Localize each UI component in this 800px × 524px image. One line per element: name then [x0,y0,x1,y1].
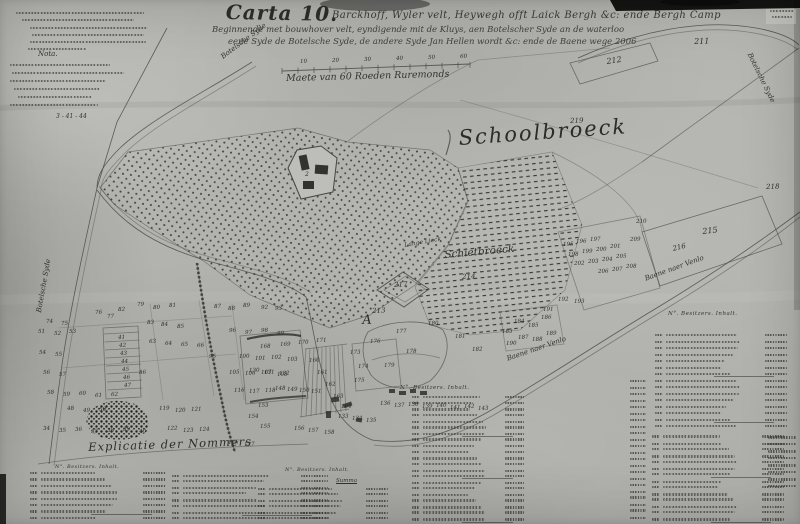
ledger-text [666,347,738,349]
parcel-number: 65 [181,343,188,349]
ledger-text [41,491,117,493]
parcel-number: 148 [275,387,286,393]
handwritten-note-line [772,16,792,18]
map-labels-layer: Carta 10. Barckhoff, Wyler velt, Heywegh… [0,0,800,524]
ledger-text [630,491,646,493]
parcel-number: 38 [107,429,114,435]
parcel-number: 50 [428,56,435,62]
ledger-text [762,493,784,495]
parcel-number: 118 [265,389,276,395]
ledger-text [630,387,646,389]
ledger-text [666,367,722,369]
ledger-text [423,499,476,501]
ledger-text [269,500,342,502]
ledger-text [666,386,740,388]
ledger-text [765,380,787,382]
ledger-text [630,484,646,486]
ledger-text [630,426,646,428]
ledger-text [183,512,270,514]
parcel-number: 40 [396,57,403,63]
parcel-number: 198 [568,253,579,259]
ledger-sum-line [242,515,312,516]
ledger-text [505,426,524,428]
parcel-number: 124 [199,428,210,434]
parcel-number: 121 [191,408,202,414]
ledger-text [301,480,328,482]
ledger-text [655,380,663,382]
ledger-text [423,506,482,508]
ledger-text [505,433,524,435]
ledger-text [269,488,332,490]
ledger-text [655,360,663,362]
ledger-text [30,478,38,480]
ledger-text [412,445,420,447]
ledger-text [423,408,470,410]
table-header-right: N°. Besitzers. Inhalt. [668,312,738,318]
ledger-text [630,452,646,454]
parcel-number: 135 [366,419,377,425]
ledger-text [269,512,336,514]
ledger-text [505,402,524,404]
parcel-number: 208 [626,265,637,271]
ledger-text [765,393,787,395]
parcel-number: 196 [576,240,587,246]
ledger-text [412,438,420,440]
parcel-number: 103 [287,358,298,364]
ledger-text [423,433,485,435]
parcel-number: 101 [255,357,266,363]
parcel-number: 183 [502,330,513,336]
parcel-number: 35 [59,429,66,435]
ledger-text [172,517,180,519]
parcel-number: 40 [139,430,146,436]
parcel-number: 81 [169,304,176,310]
parcel-number: 10 [300,60,307,66]
ledger-text [258,493,266,495]
ledger-text [666,412,721,414]
ledger-text [143,504,166,506]
parcel-number: 195 [563,243,574,249]
parcel-label: 215 [702,226,718,236]
ledger-text [765,425,787,427]
ledger-text [258,517,266,519]
parcel-number: 48 [67,407,74,413]
ledger-text [412,421,420,423]
ledger-text [505,445,524,447]
ledger-text [30,510,38,512]
ledger-text [423,445,474,447]
parcel-number: 158 [324,431,335,437]
ledger-text [412,475,420,477]
ledger-text [172,512,180,514]
ledger-text [412,470,420,472]
ledger-text [366,488,388,490]
parcel-number: 127 [244,443,255,449]
ledger-text [30,491,38,493]
ledger-text [666,406,726,408]
table-header-left: N°. Besitzers. Inhalt. [55,465,119,470]
ledger-text [41,517,96,519]
ledger-text [505,506,524,508]
parcel-label: 214 [462,274,476,281]
ledger-text [258,505,266,507]
ledger-text [762,518,784,520]
ledger-text [505,511,524,513]
ledger-text [505,457,524,459]
ledger-text [630,380,646,382]
ledger-text [143,517,166,519]
ledger-text [630,419,646,421]
parcel-number: 203 [588,260,599,266]
ledger-text [41,472,95,474]
ledger-text [765,341,787,343]
ledger-text [663,498,734,500]
ledger-text [655,406,663,408]
parcel-number: 87 [214,305,221,311]
handwritten-note-line [10,64,110,66]
parcel-number: 80 [153,306,160,312]
ledger-text [652,481,660,483]
ledger-text [663,473,730,475]
parcel-number: 51 [38,330,45,336]
ledger-text [630,393,646,395]
parcel-number: 122 [167,427,178,433]
ledger-text [655,334,663,336]
parcel-number: 119 [159,407,170,413]
ledger-text [630,445,646,447]
parcel-number: 197 [590,238,601,244]
ledger-text [663,511,735,513]
parcel-number: 131 [264,371,275,377]
ledger-text [652,498,660,500]
ledger-text [505,438,524,440]
parcel-number: 57 [59,373,66,379]
parcel-number: 53 [69,330,76,336]
ledger-text [655,373,663,375]
parcel-number: 46 [123,376,130,382]
ledger-text [666,380,737,382]
parcel-number: 160 [309,359,320,365]
parcel-number: 154 [248,415,259,421]
parcel-number: 55 [55,353,62,359]
parcel-number: 96 [229,329,236,335]
ledger-text [143,510,166,512]
ledger-text [258,488,266,490]
ledger-text [663,455,735,457]
ledger-text [768,485,796,487]
ledger-text [41,498,117,500]
parcel-number: 200 [596,248,607,254]
parcel-number: 155 [260,425,271,431]
parcel-number: 100 [239,355,250,361]
parcel-number: 49 [83,409,90,415]
ledger-text [652,493,660,495]
parcel-number: 36 [75,428,82,434]
ledger-text [765,367,787,369]
ledger-text [655,412,663,414]
parcel-number: 88 [228,307,235,313]
parcel-number: 150 [299,389,310,395]
parcel-number: 179 [384,364,395,370]
map-title-line2: Beginnende met bouwhover velt, eyndigend… [212,26,624,35]
ledger-text [172,505,180,507]
parcel-number: 76 [95,311,102,317]
ledger-text [652,486,660,488]
nota-label: Nota. [38,51,58,58]
region-schietbroeck: Schietbroeck [444,244,515,261]
ledger-text [768,471,796,473]
ledger-sum-line [91,514,152,515]
ledger-text [765,354,787,356]
ledger-text [630,458,646,460]
parcel-number: 84 [161,323,168,329]
ledger-text [423,426,486,428]
ledger-text [505,470,524,472]
ledger-text [765,406,787,408]
ledger-text [143,472,166,474]
ledger-text [505,499,524,501]
ledger-text [412,482,420,484]
handwritten-note-line [10,104,98,106]
ledger-text [505,463,524,465]
parcel-number: 177 [396,330,407,336]
parcel-number: 193 [574,300,585,306]
ledger-text [412,451,420,453]
ledger-text [412,487,420,489]
parcel-number: 85 [177,325,184,331]
road-botelsche-left: Botelsche Syde [36,258,52,313]
note-fragment: 3 - 41 - 44 [56,114,87,120]
ledger-text [41,478,105,480]
ledger-text [183,480,264,482]
ledger-text [765,412,787,414]
parcel-number: 175 [354,379,365,385]
parcel-label: 219 [570,118,584,125]
ledger-text [655,399,663,401]
parcel-number: 92 [261,306,268,312]
ledger-text [269,517,329,519]
ledger-text [423,414,477,416]
ledger-text [765,419,787,421]
ledger-text [768,464,796,466]
ledger-text [412,463,420,465]
ledger-text [505,414,524,416]
parcel-number: 156 [294,427,305,433]
ledger-text [301,475,328,477]
ledger-text [655,386,663,388]
ledger-text [412,408,420,410]
ledger-text [172,475,180,477]
parcel-number: 58 [47,391,54,397]
ledger-text [666,399,734,401]
ledger-text [183,492,246,494]
parcel-number: 132 [279,372,290,378]
ledger-text [412,402,420,404]
handwritten-note-line [32,34,144,36]
parcel-number: 62 [111,393,118,399]
ledger-text [366,517,388,519]
parcel-number: 95 [209,355,216,361]
ledger-text [30,504,38,506]
ledger-text [423,421,483,423]
ledger-text [172,492,180,494]
parcel-number: 75 [61,322,68,328]
parcel-label: 212 [606,56,622,66]
ledger-text [630,517,646,519]
parcel-number: 61 [95,394,102,400]
ledger-text [423,511,485,513]
parcel-number: 171 [316,339,327,345]
ledger-text [366,493,388,495]
parcel-number: 44 [121,360,128,366]
ledger-text [630,504,646,506]
ledger-text [663,518,730,520]
parcel-number: 153 [258,404,269,410]
ledger-text [366,500,388,502]
ledger-text [258,512,266,514]
ledger-text [663,468,735,470]
ledger-text [630,478,646,480]
ledger-text [258,500,266,502]
table-summa: Summa [336,479,357,485]
parcel-number: 209 [630,238,641,244]
road-lange-lieck: Lange Lieck [404,237,442,249]
ledger-text [655,367,663,369]
ledger-text [663,448,729,450]
ledger-text [183,487,256,489]
ledger-text [30,485,38,487]
ledger-text [630,465,646,467]
ledger-text [762,506,784,508]
ledger-text [762,498,784,500]
parcel-number: 74 [46,320,53,326]
map-title-carta: Carta 10. [226,2,339,24]
parcel-label: A [362,314,372,327]
parcel-number: 123 [183,429,194,435]
parcel-number: 105 [229,371,240,377]
ledger-text [30,498,38,500]
parcel-number: 37 [91,430,98,436]
parcel-number: 202 [574,262,585,268]
parcel-number: 42 [119,344,126,350]
ledger-text [655,347,663,349]
parcel-number: 59 [63,393,70,399]
ledger-text [412,426,420,428]
ledger-text [652,468,660,470]
ledger-sum-line [462,522,512,523]
ledger-text [765,386,787,388]
ledger-text [666,425,736,427]
parcel-number: 56 [43,371,50,377]
ledger-text [269,505,341,507]
ledger-text [666,360,725,362]
scanned-historical-map: Carta 10. Barckhoff, Wyler velt, Heywegh… [0,0,800,524]
ledger-text [423,487,475,489]
handwritten-note-line [14,88,100,90]
ledger-text [663,443,721,445]
ledger-text [30,472,38,474]
parcel-number: 50 [99,408,106,414]
parcel-number: 86 [139,371,146,377]
parcel-number: 151 [311,390,322,396]
ledger-text [630,400,646,402]
parcel-number: 63 [149,340,156,346]
parcel-number: 210 [636,220,647,226]
ledger-text [652,461,660,463]
ledger-text [423,475,485,477]
ledger-text [655,354,663,356]
ledger-text [505,494,524,496]
ledger-text [663,435,720,437]
ledger-text [505,475,524,477]
parcel-number: 184 [514,320,525,326]
handwritten-note-line [10,80,106,82]
ledger-text [630,496,646,498]
handwritten-note-line [28,48,86,50]
parcel-number: 133 [338,415,349,421]
ledger-text [765,347,787,349]
parcel-number: 137 [394,404,405,410]
ledger-text [423,451,469,453]
parcel-number: 206 [598,270,609,276]
parcel-number: 117 [249,390,260,396]
ledger-text [768,436,796,438]
parcel-number: 168 [260,345,271,351]
ledger-text [412,457,420,459]
ledger-sum-line [714,376,773,377]
handwritten-note-line [12,72,124,74]
ledger-text [412,518,420,520]
ledger-sum-line [462,478,512,479]
parcel-number: 185 [528,324,539,330]
ledger-text [768,478,796,480]
parcel-number: 120 [175,409,186,415]
parcel-number: 207 [612,268,623,274]
parcel-number: 60 [79,392,86,398]
ledger-text [652,448,660,450]
parcel-number: 82 [118,308,125,314]
ledger-text [412,511,420,513]
ledger-text [765,334,787,336]
ledger-text [412,506,420,508]
ledger-text [630,406,646,408]
handwritten-note-line [770,10,794,12]
parcel-number: 126 [228,441,239,447]
parcel-number: 176 [370,340,381,346]
handwritten-note-line [22,19,134,21]
ledger-text [666,334,737,336]
parcel-number: 192 [558,298,569,304]
ledger-text [762,461,784,463]
parcel-number: 34 [43,427,50,433]
ledger-text [41,504,113,506]
ledger-text [423,494,468,496]
ledger-text [412,414,420,416]
ledger-sum-line [711,522,770,523]
ledger-text [172,499,180,501]
ledger-text [663,506,737,508]
parcel-label: 213 [372,308,386,315]
ledger-text [423,463,482,465]
parcel-number: 182 [472,348,483,354]
parcel-number: 143 [478,407,489,413]
parcel-number: 164 [341,405,352,411]
ledger-text [412,499,420,501]
ledger-text [505,421,524,423]
parcel-number: 188 [532,338,543,344]
parcel-label: 211 [694,37,710,46]
map-title-line1: Barckhoff, Wyler velt, Heywegh offt Laic… [332,11,721,21]
